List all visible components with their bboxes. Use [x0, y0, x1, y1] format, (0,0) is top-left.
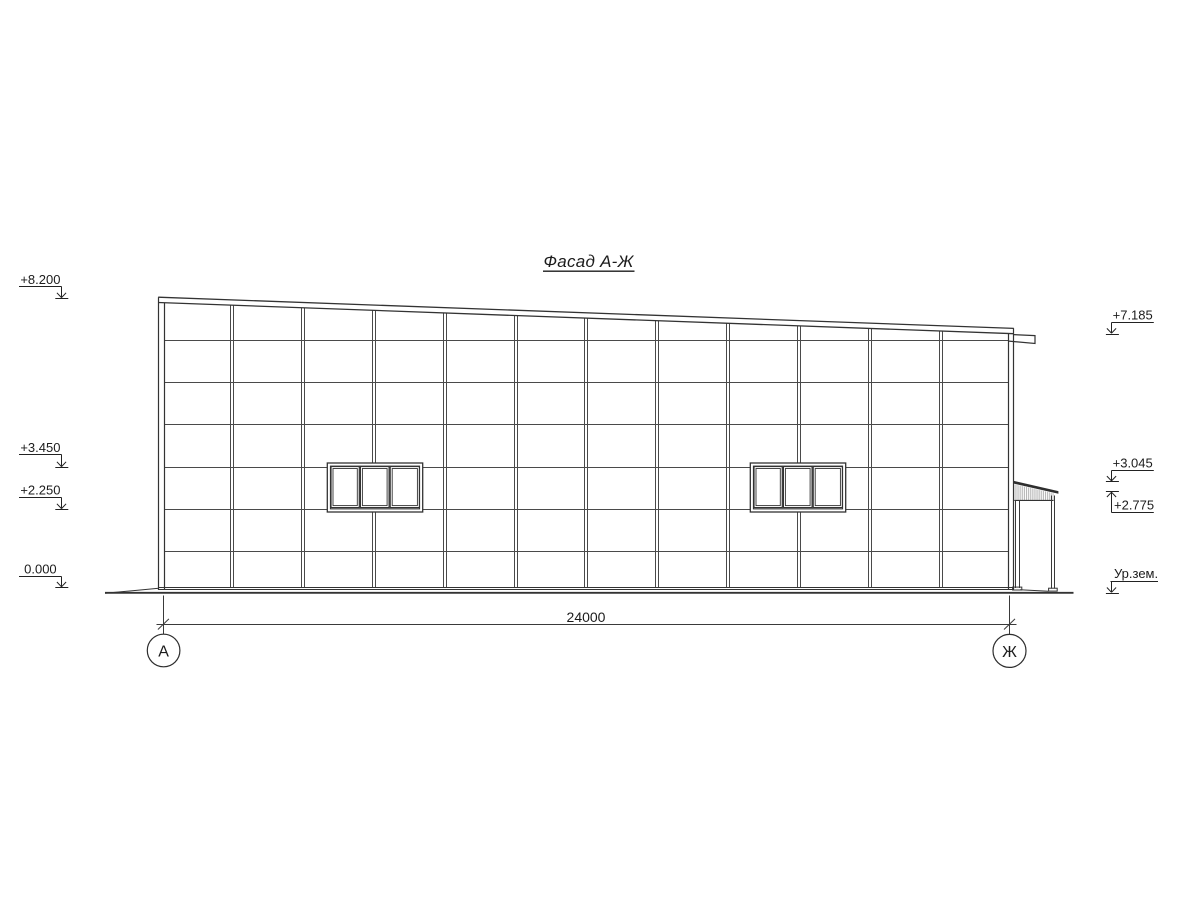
- svg-text:+3.045: +3.045: [1113, 456, 1153, 471]
- svg-text:Фасад А-Ж: Фасад А-Ж: [544, 252, 635, 271]
- svg-text:0.000: 0.000: [24, 561, 57, 576]
- svg-text:24000: 24000: [567, 609, 606, 625]
- svg-text:+8.200: +8.200: [20, 272, 60, 287]
- svg-text:+2.775: +2.775: [1114, 498, 1154, 513]
- svg-text:+2.250: +2.250: [20, 482, 60, 497]
- svg-text:+3.450: +3.450: [20, 440, 60, 455]
- svg-text:Ур.зем.: Ур.зем.: [1114, 566, 1158, 581]
- svg-text:+7.185: +7.185: [1113, 307, 1153, 322]
- svg-text:А: А: [158, 643, 169, 660]
- svg-text:Ж: Ж: [1002, 644, 1017, 661]
